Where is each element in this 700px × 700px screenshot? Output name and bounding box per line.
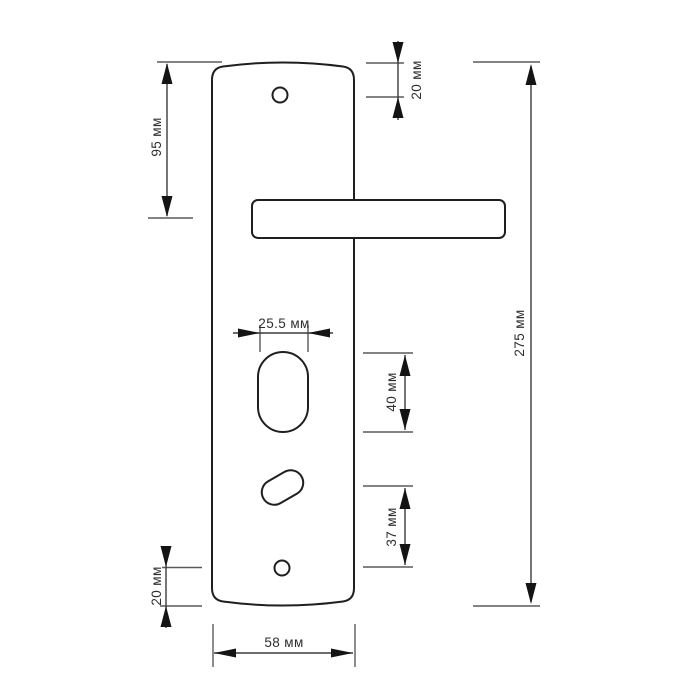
- handle-lever: [252, 200, 505, 238]
- dim-95mm: 95 мм: [148, 62, 222, 218]
- dim-20mm-top-arrow-down: [393, 42, 404, 63]
- cylinder-hole: [258, 352, 308, 432]
- dim-37mm-label: 37 мм: [384, 507, 399, 546]
- dim-95mm-arrow-down: [162, 196, 173, 217]
- dim-58mm-arrow-right: [331, 649, 353, 658]
- dim-40mm-arrow-up: [400, 355, 411, 376]
- dim-95mm-label: 95 мм: [149, 117, 164, 156]
- dim-20mm-bottom-arrow-down: [161, 546, 172, 567]
- dim-37mm-arrow-down: [400, 544, 411, 565]
- dim-95mm-arrow-up: [162, 63, 173, 84]
- dim-40mm-label: 40 мм: [384, 372, 399, 411]
- backplate: [212, 63, 354, 606]
- dim-25-5mm-label: 25.5 мм: [258, 316, 309, 331]
- dim-275mm-arrow-up: [526, 64, 537, 85]
- dim-40mm-arrow-down: [400, 409, 411, 430]
- technical-drawing-canvas: 95 мм 20 мм 275 мм 25.5 мм: [0, 0, 700, 700]
- dim-20mm-bottom-arrow-up: [161, 606, 172, 627]
- backplate-outline: [212, 63, 354, 606]
- bottom-screw-hole: [275, 561, 290, 576]
- dim-20mm-bottom: 20 мм: [149, 546, 202, 628]
- dim-20mm-top-label: 20 мм: [409, 60, 424, 99]
- dim-275mm: 275 мм: [473, 62, 540, 606]
- dim-275mm-arrow-down: [526, 583, 537, 604]
- top-screw-hole: [273, 88, 288, 103]
- door-handle-drawing: 95 мм 20 мм 275 мм 25.5 мм: [0, 0, 700, 700]
- dim-58mm-arrow-left: [214, 649, 236, 658]
- dim-58mm-label: 58 мм: [264, 635, 303, 650]
- dim-40mm: 40 мм: [363, 353, 413, 432]
- dim-20mm-top: 20 мм: [366, 41, 424, 120]
- dim-37mm-arrow-up: [400, 488, 411, 509]
- dim-20mm-bottom-label: 20 мм: [149, 566, 164, 605]
- dim-58mm: 58 мм: [213, 624, 355, 667]
- dim-275mm-label: 275 мм: [512, 309, 527, 356]
- dim-20mm-top-arrow-up: [393, 97, 404, 118]
- dim-37mm: 37 мм: [363, 486, 413, 567]
